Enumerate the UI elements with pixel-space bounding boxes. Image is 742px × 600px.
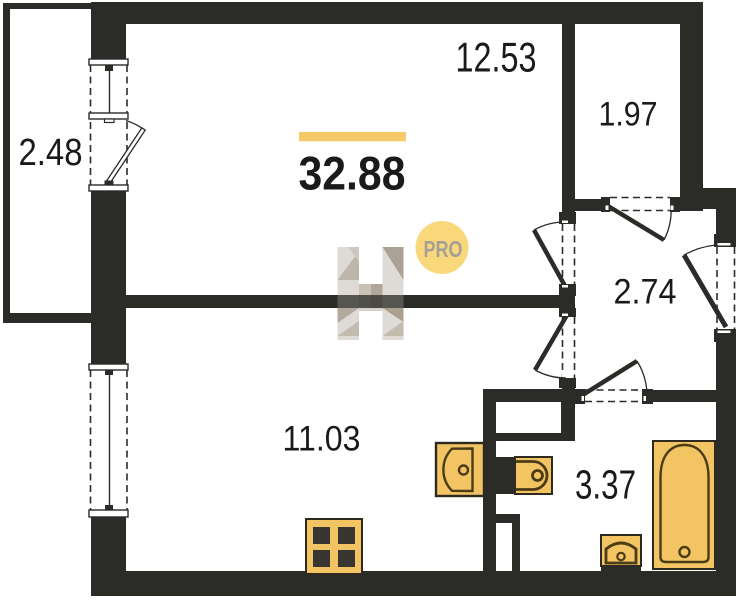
svg-text:11.03: 11.03: [283, 420, 361, 459]
svg-text:32.88: 32.88: [299, 148, 406, 201]
svg-text:12.53: 12.53: [456, 34, 537, 81]
svg-text:PRO: PRO: [424, 236, 463, 262]
svg-text:2.74: 2.74: [614, 273, 677, 312]
svg-text:3.37: 3.37: [575, 462, 636, 508]
svg-text:1.97: 1.97: [599, 96, 658, 134]
svg-text:2.48: 2.48: [19, 132, 83, 174]
